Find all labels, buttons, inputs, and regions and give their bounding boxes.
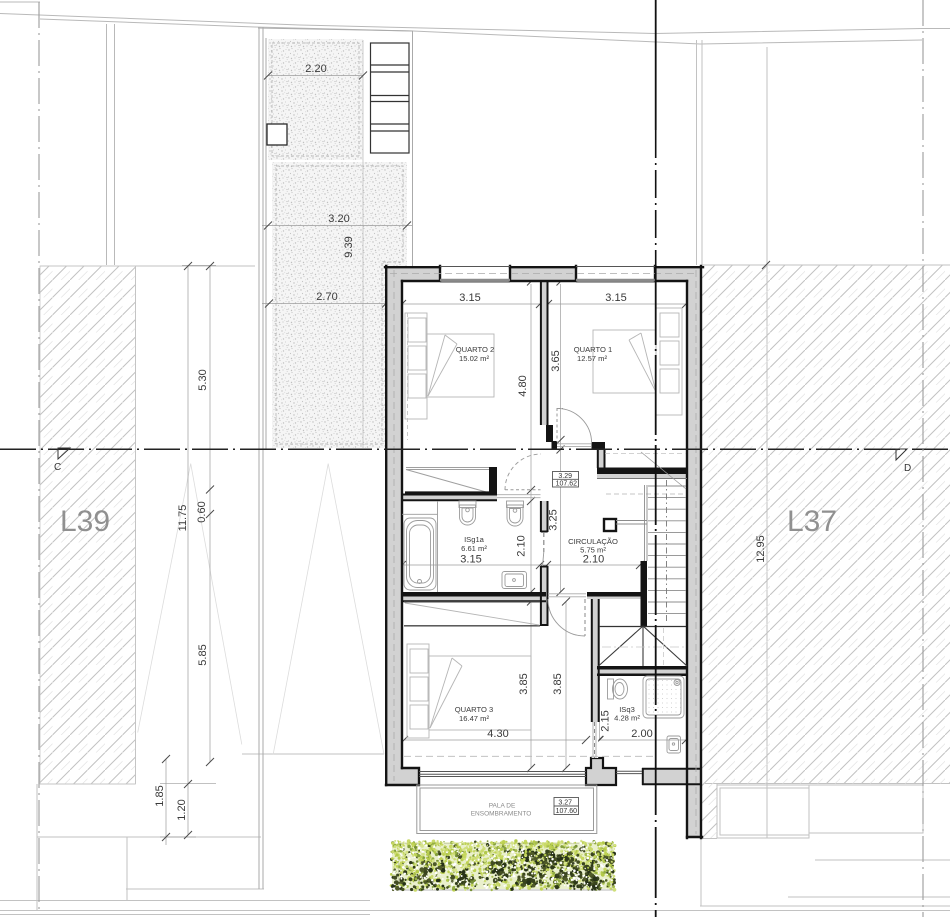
- svg-text:D: D: [904, 463, 911, 474]
- svg-text:3.85: 3.85: [552, 673, 564, 694]
- svg-text:2.10: 2.10: [516, 535, 528, 556]
- svg-text:3.15: 3.15: [459, 292, 480, 304]
- svg-text:3.29: 3.29: [558, 473, 572, 480]
- svg-text:107.60: 107.60: [556, 808, 578, 815]
- svg-text:QUARTO 2: QUARTO 2: [456, 345, 495, 354]
- svg-text:3.25: 3.25: [548, 509, 560, 530]
- svg-text:PALA DE: PALA DE: [489, 803, 516, 810]
- svg-text:L39: L39: [60, 505, 110, 538]
- svg-text:3.85: 3.85: [518, 673, 530, 694]
- svg-text:1.20: 1.20: [176, 799, 188, 820]
- svg-text:C: C: [54, 462, 61, 473]
- svg-text:5.30: 5.30: [197, 369, 209, 390]
- svg-text:2.15: 2.15: [600, 710, 612, 731]
- svg-text:4.80: 4.80: [517, 375, 529, 396]
- svg-text:ISg1a: ISg1a: [464, 535, 485, 544]
- svg-text:16.47 m²: 16.47 m²: [459, 714, 489, 723]
- svg-text:1.85: 1.85: [154, 785, 166, 806]
- svg-text:3.15: 3.15: [460, 554, 481, 566]
- svg-text:3.27: 3.27: [558, 800, 572, 807]
- svg-text:15.02 m²: 15.02 m²: [459, 354, 489, 363]
- svg-text:2.20: 2.20: [305, 63, 326, 75]
- svg-text:0.60: 0.60: [196, 501, 208, 522]
- svg-text:3.15: 3.15: [605, 292, 626, 304]
- svg-text:2.70: 2.70: [316, 291, 337, 303]
- svg-text:12.57 m²: 12.57 m²: [577, 354, 607, 363]
- svg-text:L37: L37: [787, 505, 837, 538]
- svg-text:QUARTO 1: QUARTO 1: [574, 345, 613, 354]
- svg-text:2.00: 2.00: [631, 728, 652, 740]
- svg-text:107.62: 107.62: [556, 481, 578, 488]
- svg-text:QUARTO 3: QUARTO 3: [455, 705, 494, 714]
- svg-text:ENSOMBRAMENTO: ENSOMBRAMENTO: [471, 811, 532, 818]
- svg-text:12.95: 12.95: [755, 535, 767, 563]
- svg-text:4.30: 4.30: [487, 728, 508, 740]
- svg-text:9.39: 9.39: [343, 236, 355, 257]
- svg-text:11.75: 11.75: [177, 505, 189, 532]
- svg-text:5.75 m²: 5.75 m²: [580, 546, 606, 555]
- svg-text:5.85: 5.85: [197, 644, 209, 665]
- svg-text:3.20: 3.20: [328, 213, 349, 225]
- svg-text:2.10: 2.10: [583, 554, 604, 566]
- svg-text:6.61 m²: 6.61 m²: [461, 544, 487, 553]
- svg-text:3.65: 3.65: [550, 350, 562, 371]
- svg-text:4.28 m²: 4.28 m²: [614, 714, 640, 723]
